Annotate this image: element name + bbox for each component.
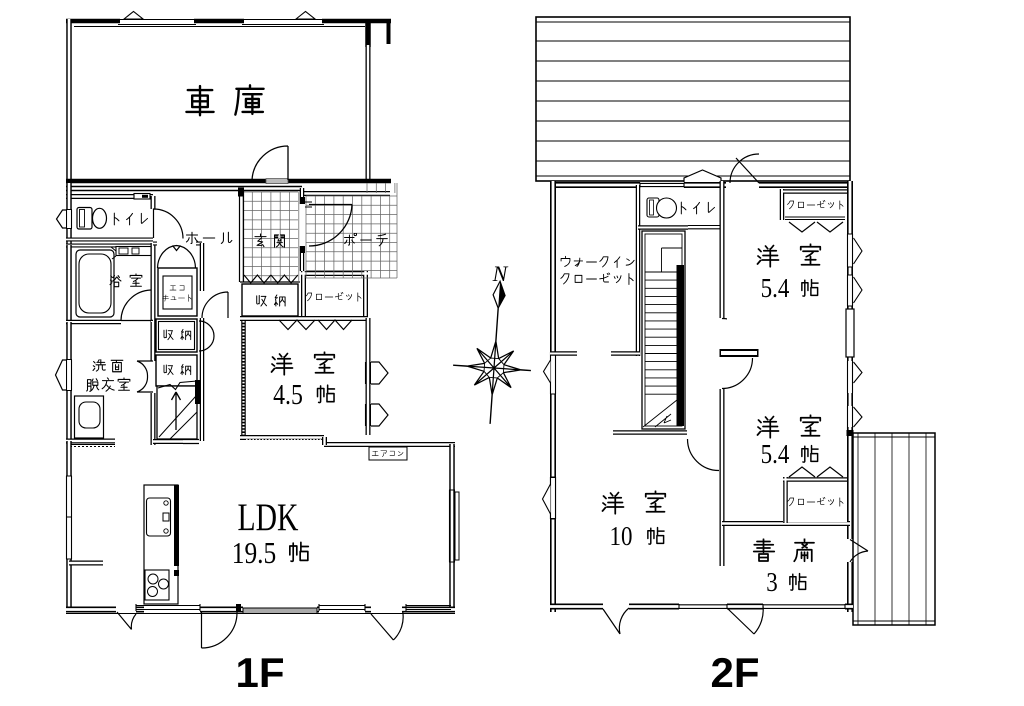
svg-text:4.5: 4.5	[273, 379, 303, 410]
svg-text:LDK: LDK	[238, 496, 299, 539]
svg-text:5.4: 5.4	[761, 440, 790, 469]
svg-text:19.5: 19.5	[232, 537, 276, 571]
svg-text:1F: 1F	[235, 649, 284, 696]
svg-text:5.4: 5.4	[761, 274, 790, 303]
svg-text:N: N	[492, 261, 509, 286]
svg-text:3: 3	[766, 568, 777, 597]
svg-text:10: 10	[610, 522, 633, 551]
svg-text:2F: 2F	[710, 649, 759, 696]
